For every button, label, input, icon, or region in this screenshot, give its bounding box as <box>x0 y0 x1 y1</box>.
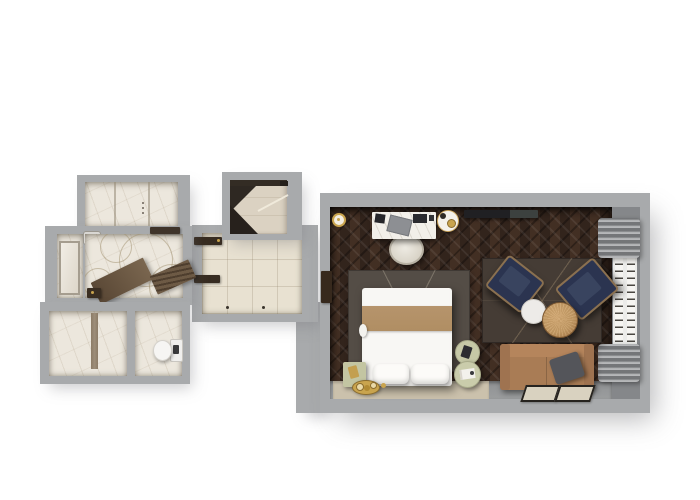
sofa <box>500 344 594 390</box>
bathroom-top <box>77 175 190 233</box>
bedroom-door-leaf <box>321 271 332 303</box>
floor-plan-canvas <box>0 0 700 500</box>
armchair-right-cushion <box>566 271 602 306</box>
curtain-top <box>598 218 640 258</box>
main-room <box>320 193 650 413</box>
door-hinge-dot-2 <box>262 306 265 309</box>
vanity-door-handle-icon <box>91 291 94 294</box>
toilet-flush-plate <box>173 345 179 354</box>
desk-accessory <box>429 215 434 221</box>
toilet-bowl <box>153 340 172 361</box>
shower-glass-panel-1 <box>114 182 116 227</box>
cup-gold-icon <box>447 219 456 228</box>
entry-hall-floor <box>202 233 302 314</box>
shower-fixture-strip <box>91 313 98 369</box>
bathroom-main <box>45 226 192 305</box>
door-leaf-1 <box>194 237 222 245</box>
coffee-tray <box>437 210 459 232</box>
armchair-left-cushion <box>498 265 531 297</box>
pillow-right <box>411 364 449 384</box>
bath-door-threshold <box>150 227 180 234</box>
bed <box>362 288 452 386</box>
sofa-arm-right <box>584 344 594 390</box>
sofa-arm-left <box>500 344 510 390</box>
laptop <box>374 213 385 223</box>
gold-vase-icon <box>348 365 360 379</box>
desk <box>372 212 436 239</box>
door-leaf-2 <box>194 275 220 283</box>
document-folder <box>386 214 412 236</box>
curtain-bottom <box>598 344 640 382</box>
shower-control-dot-3 <box>142 212 144 214</box>
bathroom-lower <box>40 302 190 384</box>
cup-dark-icon <box>440 213 446 219</box>
gold-bottle-1 <box>356 383 364 391</box>
wet-room-floor <box>85 182 178 227</box>
ceiling-light-center <box>337 218 340 221</box>
bed-runner <box>362 306 452 331</box>
closet-nook <box>222 172 302 240</box>
shower-glass-panel-2 <box>148 182 150 227</box>
window <box>613 252 637 344</box>
coffee-table-wood <box>542 302 578 338</box>
door-hinge-dot-1 <box>226 306 229 309</box>
gold-bottle-3 <box>370 382 377 389</box>
shower-room-floor <box>49 311 127 376</box>
side-table-1-item <box>460 345 472 359</box>
door-handle-icon <box>217 239 220 242</box>
tv <box>464 210 538 218</box>
closet-rail <box>230 180 287 186</box>
side-table-2 <box>454 361 481 388</box>
shower-control-dot-1 <box>142 202 144 204</box>
duvet-fold <box>359 324 367 337</box>
closet-dark-mark <box>280 181 288 186</box>
vanity-mirror <box>59 241 80 295</box>
coffee-table-grain <box>543 303 577 337</box>
pillow-left <box>373 364 409 384</box>
gold-trinket <box>381 383 386 388</box>
shower-control-dot-2 <box>142 207 144 209</box>
side-table-2-item <box>470 371 474 375</box>
wc-floor <box>135 311 182 376</box>
gold-decor-tray <box>352 380 380 395</box>
ceiling-light-ring-icon <box>332 213 346 227</box>
vanity-door-item <box>87 288 101 298</box>
floor-mat-2 <box>554 385 596 402</box>
desk-phone-tray <box>413 214 427 223</box>
